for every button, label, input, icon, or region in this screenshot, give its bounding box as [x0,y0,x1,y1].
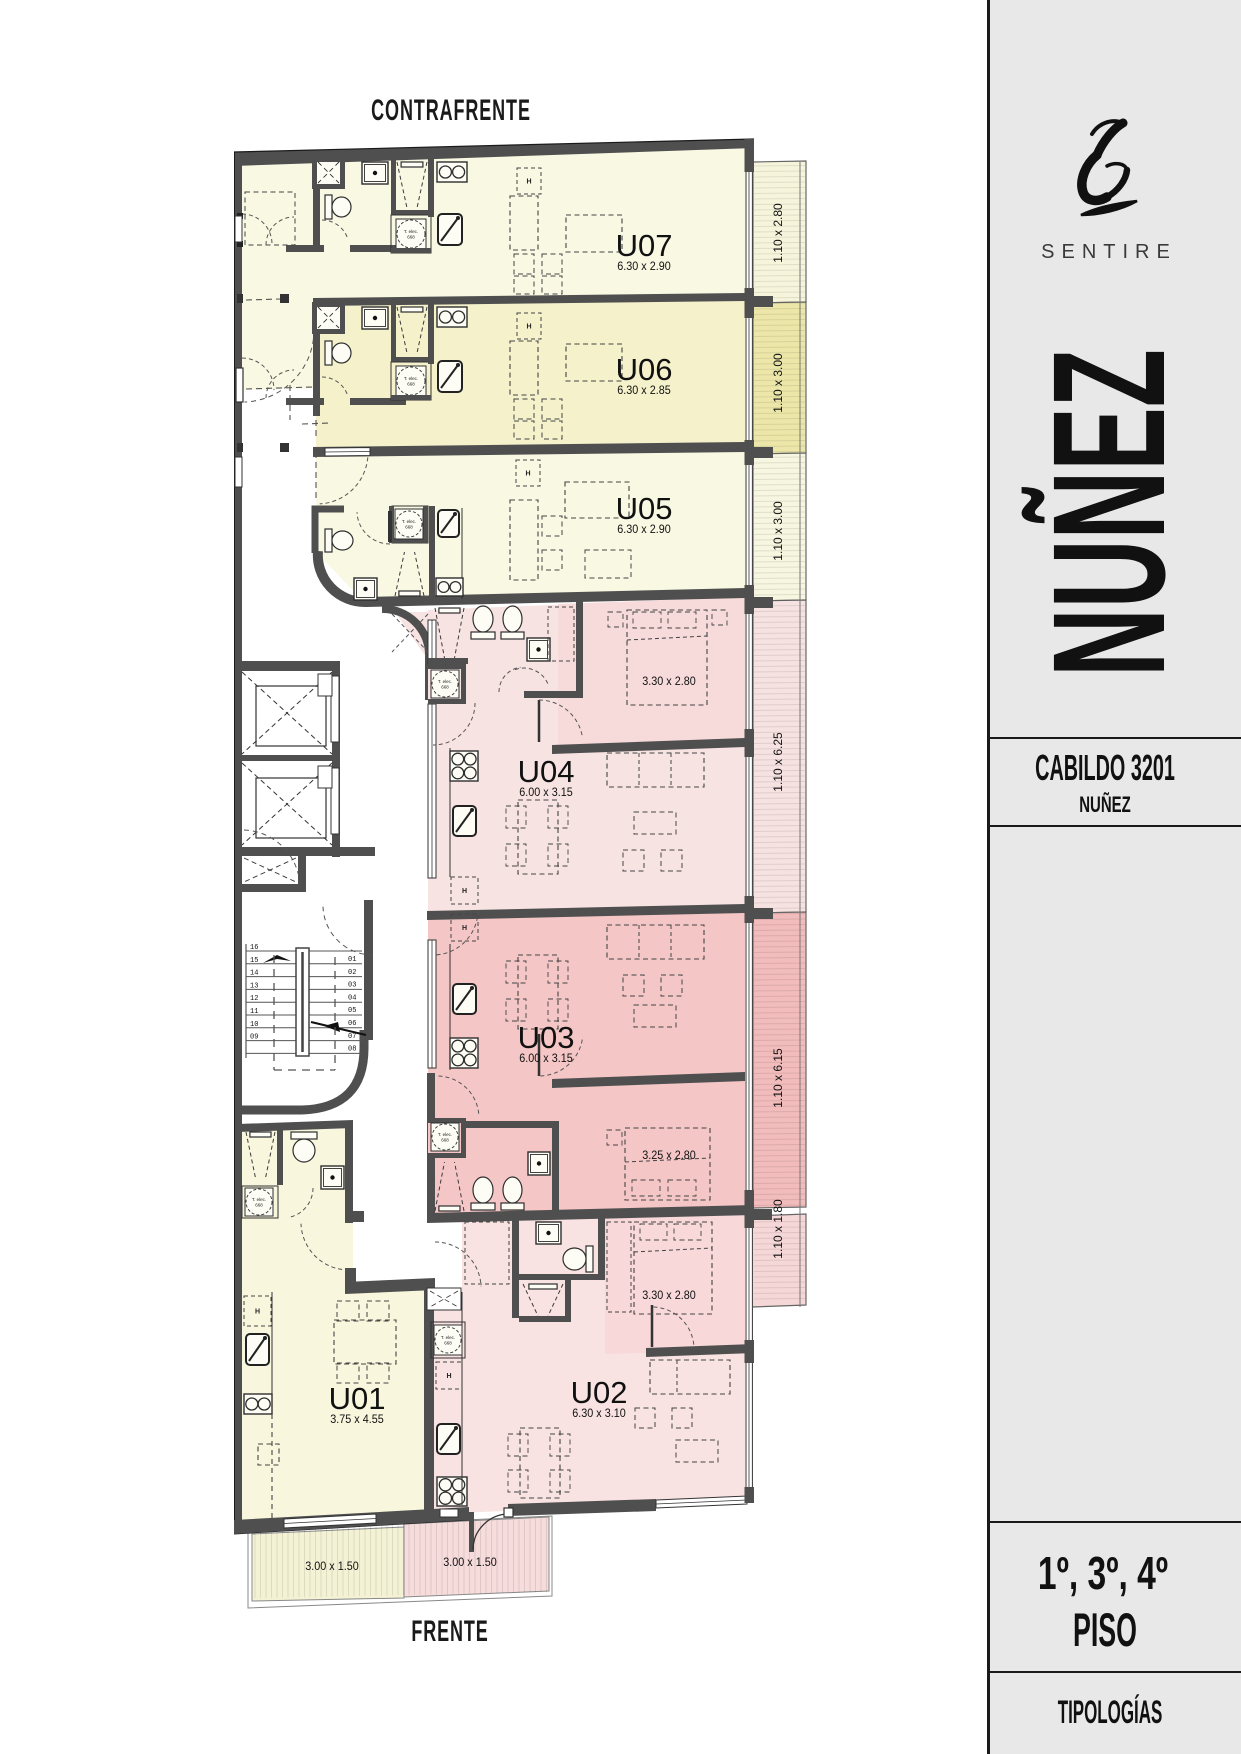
svg-text:H: H [526,324,531,331]
svg-text:02: 02 [348,969,356,977]
svg-text:668: 668 [407,382,415,387]
svg-text:H: H [525,471,530,478]
svg-text:T. elec.: T. elec. [441,1335,455,1340]
svg-text:U03: U03 [518,1020,575,1055]
svg-text:CONTRAFRENTE: CONTRAFRENTE [371,95,531,128]
svg-text:6.00 x 3.15: 6.00 x 3.15 [519,787,572,800]
svg-text:H: H [255,1309,260,1316]
svg-text:H: H [462,925,467,932]
svg-text:04: 04 [348,994,356,1002]
svg-text:6.30 x 2.85: 6.30 x 2.85 [617,385,670,398]
svg-text:08: 08 [348,1046,356,1054]
svg-text:11: 11 [250,1008,258,1016]
svg-text:H: H [446,1373,451,1380]
svg-text:U07: U07 [616,228,673,263]
svg-text:1.10 x 3.00: 1.10 x 3.00 [771,353,785,413]
svg-text:3.00 x 1.50: 3.00 x 1.50 [305,1561,358,1574]
svg-text:CABILDO 3201: CABILDO 3201 [1035,749,1175,789]
svg-text:668: 668 [441,685,449,690]
svg-text:U01: U01 [329,1381,386,1416]
svg-text:FRENTE: FRENTE [411,1616,488,1649]
svg-text:6.30 x 2.90: 6.30 x 2.90 [617,261,670,274]
svg-text:06: 06 [348,1020,356,1028]
svg-text:668: 668 [407,235,415,240]
svg-text:U06: U06 [616,352,673,387]
svg-text:1.10 x 3.00: 1.10 x 3.00 [771,501,785,561]
svg-text:668: 668 [255,1203,263,1208]
svg-text:16: 16 [250,944,258,952]
svg-text:PISO: PISO [1073,1604,1137,1657]
svg-text:6.00 x 3.15: 6.00 x 3.15 [519,1053,572,1066]
svg-text:T. elec.: T. elec. [404,229,418,234]
svg-text:1º, 3º, 4º: 1º, 3º, 4º [1038,1548,1168,1599]
svg-text:6.30 x 2.90: 6.30 x 2.90 [617,524,670,537]
svg-text:668: 668 [444,1341,452,1346]
svg-text:1.10 x 2.80: 1.10 x 2.80 [771,203,785,263]
svg-text:T. elec.: T. elec. [438,1132,452,1137]
svg-text:3.75 x 4.55: 3.75 x 4.55 [330,1414,383,1427]
svg-text:1.10 x 1.80: 1.10 x 1.80 [771,1199,785,1259]
svg-text:U04: U04 [518,754,575,789]
svg-text:T. elec.: T. elec. [252,1197,266,1202]
svg-text:13: 13 [250,982,258,990]
svg-text:668: 668 [405,525,413,530]
svg-text:TIPOLOGÍAS: TIPOLOGÍAS [1058,1694,1163,1730]
svg-text:H: H [462,888,467,895]
svg-text:01: 01 [348,956,356,964]
svg-text:14: 14 [250,970,258,978]
svg-text:SENTIRE: SENTIRE [1041,241,1177,263]
svg-text:H: H [526,179,531,186]
svg-text:03: 03 [348,982,356,990]
svg-text:05: 05 [348,1007,356,1015]
svg-text:T. elec.: T. elec. [402,519,416,524]
svg-text:NUÑEZ: NUÑEZ [1019,349,1198,677]
svg-text:T. elec.: T. elec. [404,376,418,381]
svg-text:668: 668 [441,1138,449,1143]
svg-text:T. elec.: T. elec. [438,679,452,684]
svg-text:15: 15 [250,957,258,965]
svg-text:1.10 x 6.25: 1.10 x 6.25 [771,732,785,792]
svg-text:3.00 x 1.50: 3.00 x 1.50 [443,1557,496,1570]
svg-text:10: 10 [250,1021,258,1029]
svg-text:6.30 x 3.10: 6.30 x 3.10 [572,1408,625,1421]
svg-text:1.10 x 6.15: 1.10 x 6.15 [771,1048,785,1108]
svg-text:U02: U02 [571,1375,628,1410]
svg-text:U05: U05 [616,491,673,526]
svg-text:07: 07 [348,1033,356,1041]
svg-text:NUÑEZ: NUÑEZ [1079,792,1130,817]
svg-text:3.25 x 2.80: 3.25 x 2.80 [642,1150,695,1163]
svg-text:3.30 x 2.80: 3.30 x 2.80 [642,676,695,689]
svg-text:12: 12 [250,995,258,1003]
svg-text:09: 09 [250,1034,258,1042]
svg-text:3.30 x 2.80: 3.30 x 2.80 [642,1290,695,1303]
